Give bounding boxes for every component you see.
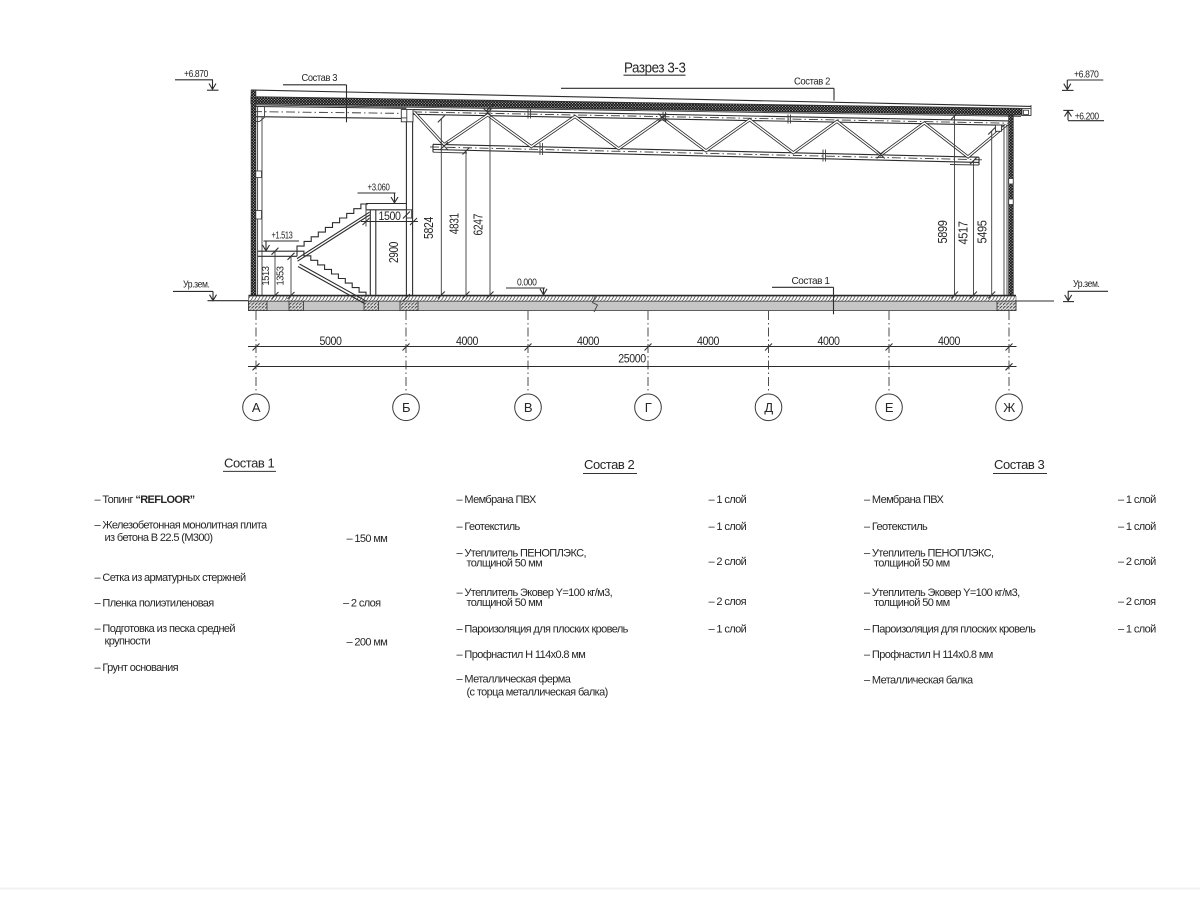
svg-text:– 1 слой: – 1 слой (1118, 521, 1156, 533)
svg-text:5000: 5000 (320, 334, 343, 348)
svg-text:А: А (252, 400, 261, 415)
svg-text:Ур.зем.: Ур.зем. (1073, 279, 1100, 290)
svg-text:4000: 4000 (577, 334, 600, 348)
svg-text:Состав 2: Состав 2 (584, 457, 635, 472)
svg-text:+6.870: +6.870 (184, 69, 209, 80)
svg-text:– 1 слой: – 1 слой (709, 624, 747, 636)
svg-text:– 150 мм: – 150 мм (347, 533, 388, 545)
svg-text:толщиной 50 мм: толщиной 50 мм (467, 597, 543, 609)
svg-text:– Профнастил Н 114х0.8 мм: – Профнастил Н 114х0.8 мм (864, 649, 993, 661)
svg-text:+1.513: +1.513 (272, 231, 294, 242)
svg-text:4000: 4000 (818, 334, 841, 348)
svg-text:– Подготовка из песка средней: – Подготовка из песка средней (95, 623, 236, 635)
svg-text:Разрез 3-3: Разрез 3-3 (624, 61, 686, 77)
svg-text:Состав 1: Состав 1 (792, 275, 831, 287)
svg-text:– 200 мм: – 200 мм (347, 637, 388, 649)
svg-text:1500: 1500 (379, 209, 402, 223)
svg-text:– Пароизоляция для плоских кр: – Пароизоляция для плоских кровель (457, 624, 629, 636)
svg-text:– Геотекстиль: – Геотекстиль (864, 521, 928, 533)
svg-text:– Сетка из арматурных стержне: – Сетка из арматурных стержней (95, 572, 246, 584)
svg-text:В: В (524, 400, 532, 415)
svg-text:5899: 5899 (935, 220, 950, 243)
svg-text:Состав 3: Состав 3 (994, 457, 1045, 472)
svg-text:4000: 4000 (456, 334, 479, 348)
svg-text:– Геотекстиль: – Геотекстиль (457, 521, 521, 533)
svg-text:Состав 2: Состав 2 (794, 76, 831, 88)
svg-text:0.000: 0.000 (517, 278, 537, 289)
svg-text:4000: 4000 (938, 334, 961, 348)
svg-text:– 2 слоя: – 2 слоя (709, 596, 747, 608)
svg-text:– Металлическая балка: – Металлическая балка (864, 675, 974, 687)
svg-text:Ур.зем.: Ур.зем. (183, 279, 210, 290)
svg-text:1513: 1513 (260, 266, 272, 286)
svg-text:6247: 6247 (470, 214, 485, 236)
svg-text:– Профнастил Н 114х0.8 мм: – Профнастил Н 114х0.8 мм (457, 649, 586, 661)
svg-text:– 2 слоя: – 2 слоя (1118, 596, 1156, 608)
svg-text:из бетона В 22.5 (М300): из бетона В 22.5 (М300) (105, 532, 213, 544)
svg-text:– Мембрана ПВХ: – Мембрана ПВХ (864, 494, 945, 506)
svg-text:– Грунт основания: – Грунт основания (95, 662, 179, 674)
svg-text:– Пленка полиэтиленовая: – Пленка полиэтиленовая (95, 598, 215, 610)
svg-text:(с торца металлическая балка): (с торца металлическая балка) (467, 687, 608, 699)
svg-text:толщиной 50 мм: толщиной 50 мм (874, 558, 950, 570)
svg-text:крупности: крупности (105, 636, 151, 648)
svg-text:Г: Г (645, 400, 652, 415)
svg-text:– Металлическая ферма: – Металлическая ферма (457, 674, 572, 686)
svg-text:– Железобетонная монолитная: – Железобетонная монолитная плита (95, 520, 269, 532)
svg-text:– Топинг “REFLOOR”: – Топинг “REFLOOR” (95, 494, 195, 506)
svg-text:+3.060: +3.060 (368, 183, 391, 194)
svg-text:Е: Е (885, 400, 894, 415)
svg-text:– 2 слой: – 2 слой (1118, 556, 1156, 568)
svg-text:Состав 3: Состав 3 (302, 72, 338, 84)
svg-text:– 2 слой: – 2 слой (709, 556, 747, 568)
svg-text:5495: 5495 (975, 220, 990, 243)
svg-text:– 2 слоя: – 2 слоя (343, 598, 381, 610)
svg-text:1353: 1353 (275, 266, 287, 286)
svg-text:толщиной 50 мм: толщиной 50 мм (467, 558, 543, 570)
svg-text:4831: 4831 (446, 213, 461, 234)
svg-text:– Пароизоляция для плоских кр: – Пароизоляция для плоских кровель (864, 624, 1036, 636)
svg-text:Состав 1: Состав 1 (224, 456, 275, 471)
svg-text:5824: 5824 (421, 217, 436, 239)
svg-text:Б: Б (402, 400, 410, 415)
svg-text:4000: 4000 (697, 334, 720, 348)
svg-text:– 1 слой: – 1 слой (1118, 494, 1156, 506)
svg-text:– 1 слой: – 1 слой (709, 494, 747, 506)
svg-text:4517: 4517 (956, 221, 971, 244)
svg-text:– Мембрана ПВХ: – Мембрана ПВХ (457, 494, 538, 506)
svg-text:Д: Д (764, 400, 773, 415)
svg-text:– 1 слой: – 1 слой (1118, 624, 1156, 636)
svg-text:+6.870: +6.870 (1074, 69, 1099, 80)
svg-text:25000: 25000 (618, 352, 646, 366)
svg-text:– 1 слой: – 1 слой (709, 521, 747, 533)
svg-text:Ж: Ж (1003, 400, 1015, 415)
svg-text:2900: 2900 (386, 242, 401, 263)
svg-text:толщиной 50 мм: толщиной 50 мм (874, 597, 950, 609)
